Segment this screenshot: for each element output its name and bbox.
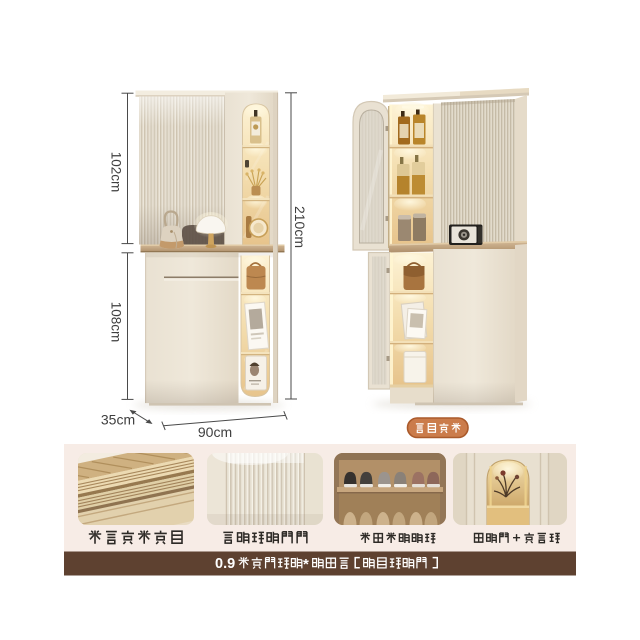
svg-text:102cm: 102cm [109,152,124,193]
svg-text:210cm: 210cm [292,206,308,248]
svg-text:35cm: 35cm [101,412,135,428]
svg-text:108cm: 108cm [109,302,124,343]
svg-text:0.9: 0.9 [215,556,235,572]
svg-text:*: * [303,556,309,573]
svg-text:90cm: 90cm [198,424,232,440]
